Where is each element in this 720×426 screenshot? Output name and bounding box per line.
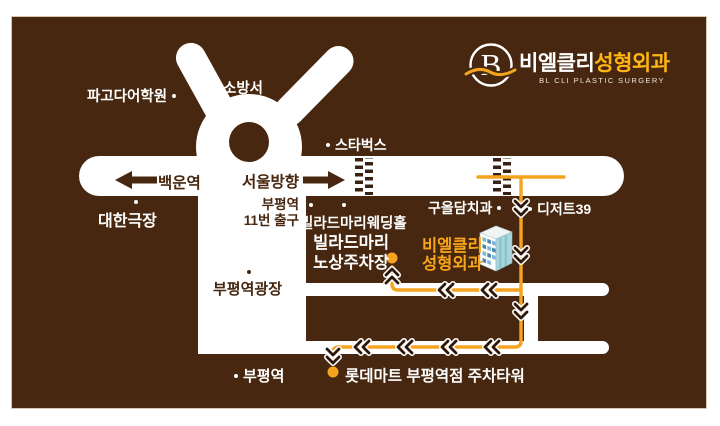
label-bupyeong-station: 부평역 [234, 365, 284, 386]
location-dot [326, 143, 330, 147]
crosswalk-stripes [355, 158, 363, 195]
label-villard-wedding-hall: 빌라드마리웨딩홀 [300, 212, 407, 233]
crosswalk-icon [493, 158, 512, 195]
roundabout-center [229, 122, 269, 162]
side-road-1 [298, 283, 609, 296]
location-label: 노상주차장 [300, 254, 389, 274]
location-dot [134, 200, 138, 204]
location-label: 파고다어학원 [87, 85, 167, 106]
location-label: 소방서 [223, 77, 263, 98]
connector-road [524, 283, 538, 354]
label-guoldam-dental: 구올담치과 [428, 198, 501, 218]
route-chevron-down-icon [515, 248, 527, 262]
location-label: 부평역 [243, 365, 284, 386]
building-icon [480, 226, 512, 271]
crosswalk-icon [355, 158, 374, 195]
map-page: B 비엘클리성형외과 BL CLI PLASTIC SURGERY 파고다어학원… [0, 0, 720, 426]
label-bupyeong-plaza: 부평역광장 [213, 278, 282, 299]
sign-seoul-direction: 서울방향 [242, 170, 299, 192]
sign-baegun-station: 백운역 [158, 171, 201, 193]
logo-name-white: 비엘클리 [519, 52, 594, 75]
location-dot [214, 86, 218, 90]
label-dessert39: 디저트39 [528, 199, 591, 219]
location-dot [497, 206, 501, 210]
location-label: 성형외과 [422, 256, 480, 274]
location-label: 비엘클리 [422, 238, 480, 256]
label-fire-station: 소방서 [214, 77, 263, 98]
location-label: 빌라드마리 [300, 234, 389, 254]
label-clinic: 비엘클리 성형외과 [422, 238, 480, 273]
location-dot [528, 207, 532, 211]
location-label: 부평역 [216, 197, 299, 213]
route-chevron-down-icon [515, 201, 527, 215]
location-label: 11번 출구 [216, 213, 299, 229]
label-pagoda-academy: 파고다어학원 [87, 85, 176, 106]
logo-title: 비엘클리성형외과 [519, 47, 670, 77]
location-dot [342, 203, 346, 207]
logo-mark-letter: B [481, 47, 502, 82]
location-dot [309, 203, 313, 207]
label-bupyeong-exit: 부평역 11번 출구 [216, 197, 299, 228]
logo-subtitle: BL CLI PLASTIC SURGERY [519, 76, 685, 85]
label-lotte-mart-parking: 롯데마트 부평역점 주차타워 [345, 364, 525, 386]
location-label: 구올담치과 [428, 198, 492, 218]
lotte-destination-dot [328, 367, 339, 378]
location-label: 스타벅스 [335, 135, 387, 155]
crosswalk-stripes [493, 158, 501, 195]
label-villard-parking: 빌라드마리 노상주차장 [300, 234, 389, 273]
crosswalk-stripes [365, 158, 373, 195]
location-label: 디저트39 [537, 199, 591, 219]
map-canvas: B 비엘클리성형외과 BL CLI PLASTIC SURGERY 파고다어학원… [11, 16, 707, 409]
logo-mark-icon: B [466, 45, 515, 86]
location-dot [247, 270, 251, 274]
label-starbucks: 스타벅스 [326, 135, 387, 155]
location-dot [172, 94, 176, 98]
side-road-2 [291, 341, 609, 354]
location-dot [234, 374, 238, 378]
label-daehan-theater: 대한극장 [98, 207, 157, 231]
logo-name-orange: 성형외과 [594, 52, 669, 75]
crosswalk-stripes [503, 158, 511, 195]
